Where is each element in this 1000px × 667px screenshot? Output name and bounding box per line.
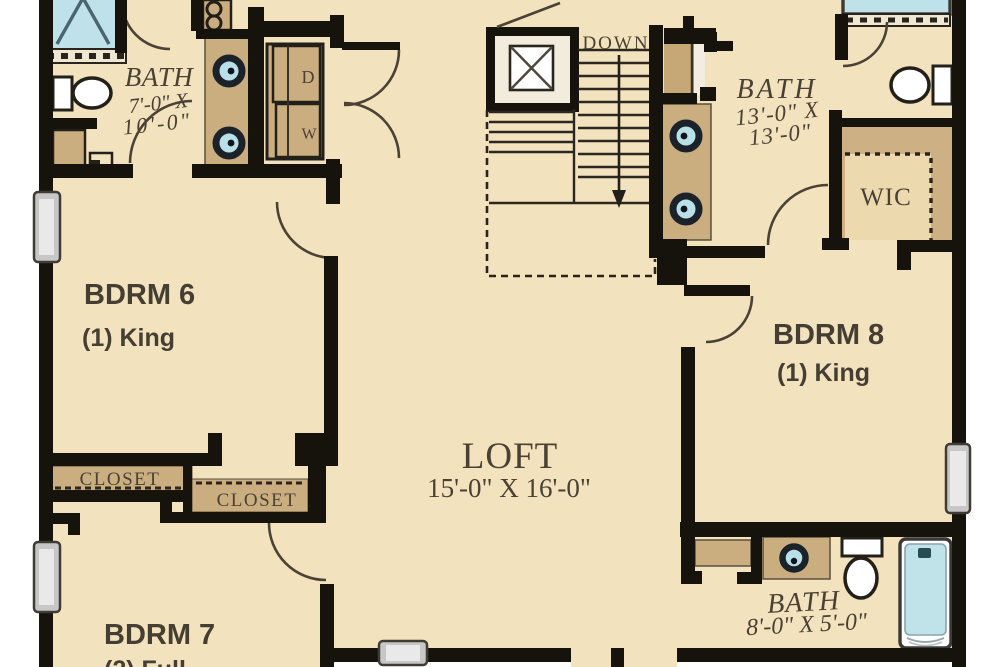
- svg-text:BDRM 6: BDRM 6: [84, 279, 195, 311]
- svg-text:CLOSET: CLOSET: [80, 469, 161, 490]
- svg-text:CLOSET: CLOSET: [217, 490, 298, 511]
- svg-text:DOWN: DOWN: [582, 33, 649, 54]
- svg-text:(1) King: (1) King: [82, 324, 175, 352]
- svg-text:WIC: WIC: [860, 184, 912, 211]
- svg-text:LOFT: LOFT: [462, 436, 559, 477]
- svg-text:15'-0" X 16'-0": 15'-0" X 16'-0": [427, 473, 591, 503]
- svg-text:BDRM 7: BDRM 7: [104, 619, 215, 651]
- svg-text:(2) Full: (2) Full: [104, 656, 186, 667]
- svg-text:W: W: [301, 126, 317, 143]
- svg-text:D: D: [302, 67, 315, 87]
- svg-text:BDRM 8: BDRM 8: [773, 319, 884, 351]
- svg-text:(1) King: (1) King: [777, 359, 870, 387]
